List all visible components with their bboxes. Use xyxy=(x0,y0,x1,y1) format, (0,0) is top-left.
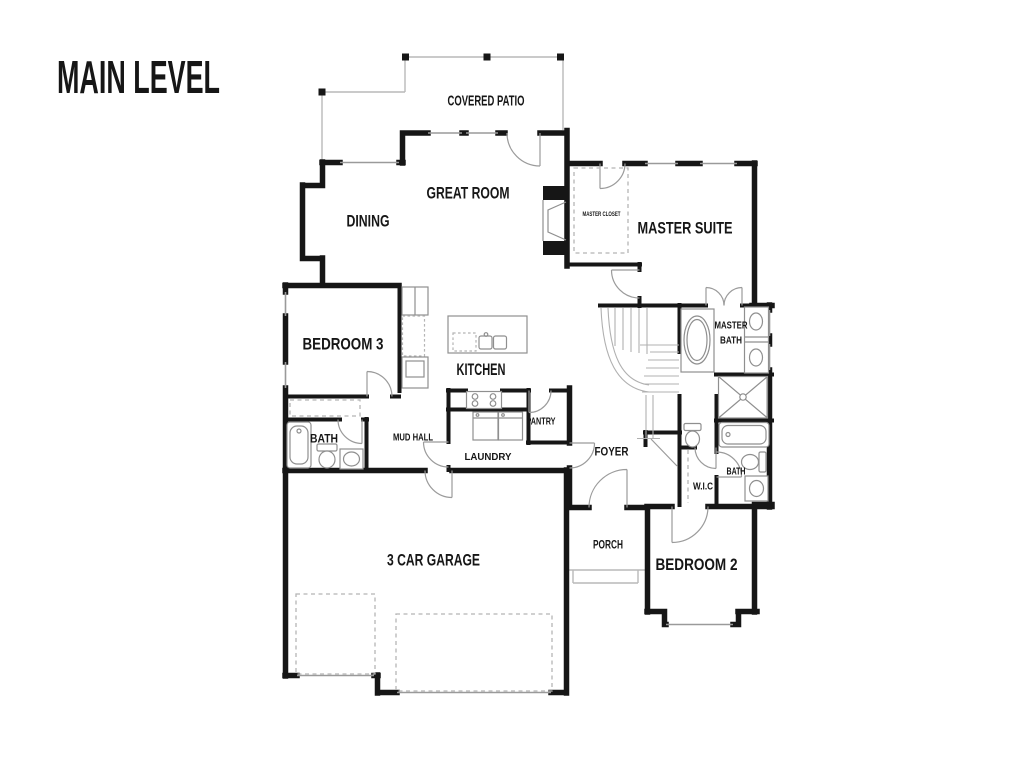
kitchen-cabinets xyxy=(402,287,428,388)
kitchen-island xyxy=(448,316,527,353)
room-label-wic: W.I.C xyxy=(693,482,713,493)
room-label-kitchen: KITCHEN xyxy=(457,361,506,379)
room-label-covered-patio: COVERED PATIO xyxy=(448,93,525,110)
fireplace xyxy=(543,186,567,255)
room-label-master-closet: MASTER CLOSET xyxy=(583,211,622,218)
plan-title: MAIN LEVEL xyxy=(57,51,220,103)
room-label-master-suite: MASTER SUITE xyxy=(638,220,733,238)
room-label-bath-right: BATH xyxy=(727,467,746,478)
room-label-pantry: PANTRY xyxy=(527,417,556,428)
room-label-foyer: FOYER xyxy=(595,447,630,459)
washer-dryer-icons xyxy=(473,412,523,440)
staircase xyxy=(601,308,679,439)
room-label-dining: DINING xyxy=(347,213,390,231)
floor-plan-svg: MAIN LEVEL COVERED PATIO GREAT ROOM DINI… xyxy=(0,0,1024,768)
range-icon xyxy=(467,392,502,409)
floor-plan-page: MAIN LEVEL COVERED PATIO GREAT ROOM DINI… xyxy=(0,0,1024,768)
room-label-bath-left: BATH xyxy=(310,434,338,446)
covered-patio-outline xyxy=(319,54,565,161)
room-label-master-bath-line2: BATH xyxy=(720,336,742,347)
room-label-great-room: GREAT ROOM xyxy=(427,185,510,203)
room-label-master-bath-line1: MASTER xyxy=(715,321,749,332)
room-label-bedroom2: BEDROOM 2 xyxy=(656,556,738,574)
room-label-porch: PORCH xyxy=(593,540,623,552)
room-label-laundry: LAUNDRY xyxy=(465,452,512,463)
bath-left-fixtures xyxy=(287,422,363,469)
room-label-mud-hall: MUD HALL xyxy=(393,433,433,444)
room-label-bedroom3: BEDROOM 3 xyxy=(303,336,384,354)
bath-right-fixtures xyxy=(719,423,769,502)
room-label-garage: 3 CAR GARAGE xyxy=(387,552,480,570)
